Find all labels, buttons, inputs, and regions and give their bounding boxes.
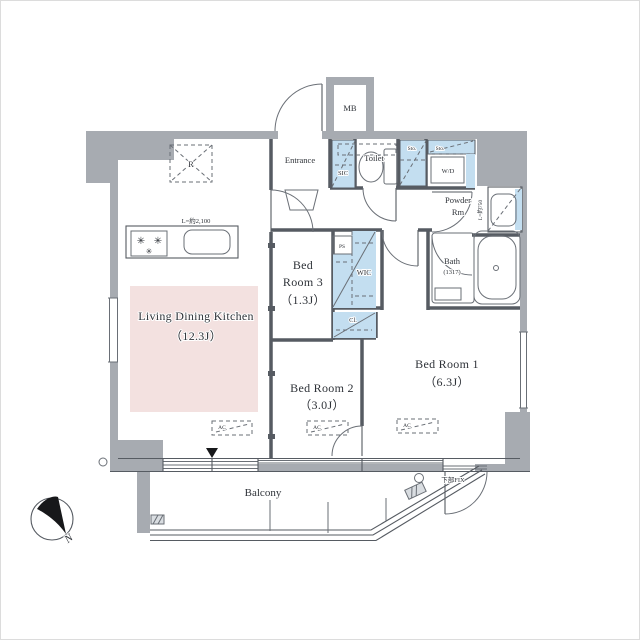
drain-mark xyxy=(415,474,424,483)
ac-label-3: AC xyxy=(403,423,411,429)
wall-bottom-band xyxy=(258,464,443,471)
ldk-size: （12.3J） xyxy=(170,329,222,343)
compass: N xyxy=(31,497,76,547)
powder-label-2: Rm xyxy=(452,207,465,217)
bathtub-inner xyxy=(478,236,516,299)
railing-posts xyxy=(270,498,386,533)
drain-box xyxy=(151,515,164,524)
wall-top-a xyxy=(174,131,278,139)
kitchen-sink xyxy=(184,230,230,254)
wic-box-l xyxy=(333,254,352,308)
kitchen: ✳ ✳ ✳ xyxy=(126,145,238,258)
closet-label: Cl. xyxy=(349,317,357,324)
washer-dryer-label: W/D xyxy=(442,168,455,175)
ldk-highlight xyxy=(130,286,258,412)
bedroom3-label-2: Room 3 xyxy=(283,275,323,289)
bath-counter xyxy=(435,288,461,300)
bedroom2-label: Bed Room 2 xyxy=(290,381,354,395)
wic-label: WIC xyxy=(357,268,372,277)
bath-floor xyxy=(432,233,474,303)
balcony-label: Balcony xyxy=(245,487,282,499)
wall-bottom-right-column xyxy=(475,412,530,472)
bedroom2-door xyxy=(332,426,362,456)
powder-room xyxy=(488,187,522,232)
shoe-closet-label: SIC xyxy=(338,170,348,177)
storage-label-a: Sto. xyxy=(408,146,417,152)
window-divider-marker xyxy=(206,448,218,458)
burner-icon: ✳ xyxy=(137,236,145,247)
wall-top-b xyxy=(322,131,527,139)
ac-label-2: AC xyxy=(313,425,321,431)
ldk-label: Living Dining Kitchen xyxy=(138,309,254,323)
bedroom1-size: （6.3J） xyxy=(424,375,469,389)
bedroom3-label-1: Bed xyxy=(293,258,313,272)
north-label: N xyxy=(62,531,76,546)
refrigerator-label: R xyxy=(188,159,194,169)
slop-sink xyxy=(405,482,426,499)
meter-box-label: MB xyxy=(343,103,357,113)
fixed-window-label: 下部FIX xyxy=(441,475,465,484)
entrance-step xyxy=(285,190,318,210)
floor-plan: ✳ ✳ ✳ xyxy=(0,0,640,640)
bedroom1-label: Bed Room 1 xyxy=(415,357,479,371)
bedroom3-size: （1.3J） xyxy=(280,293,325,307)
ldk-door xyxy=(271,190,313,232)
bathtub-drain xyxy=(494,266,499,271)
bath-label: Bath xyxy=(444,256,461,266)
ac-label-1: AC xyxy=(218,425,226,431)
hall-corridor-door xyxy=(382,230,418,266)
bedroom2-size: （3.0J） xyxy=(299,398,344,412)
image-border xyxy=(1,1,640,640)
wall-top-right-column xyxy=(477,139,527,186)
toilet-door xyxy=(363,188,396,221)
pipe-space-label: PS xyxy=(339,244,345,250)
entrance-door xyxy=(275,84,322,131)
powder-label-1: Powder xyxy=(445,195,471,205)
drain-mark xyxy=(99,458,107,466)
storage-label-b: Sto. xyxy=(436,146,445,152)
toilet-label: Toilet xyxy=(364,153,384,163)
kitchen-counter-length: L=約2,100 xyxy=(182,216,211,225)
bath-size: (1317) xyxy=(443,269,460,276)
storage-strip xyxy=(466,154,475,188)
room-fills xyxy=(130,286,258,412)
vanity-bowl xyxy=(491,194,516,226)
burner-icon: ✳ xyxy=(154,236,162,247)
toilet-tank xyxy=(384,149,397,184)
vanity-length: L=約750 xyxy=(476,200,484,220)
entrance-label: Entrance xyxy=(285,155,315,165)
north-needle-icon xyxy=(37,497,66,534)
burner-icon: ✳ xyxy=(146,247,153,256)
bathroom xyxy=(432,231,520,304)
wall-top-left-column xyxy=(86,131,174,183)
